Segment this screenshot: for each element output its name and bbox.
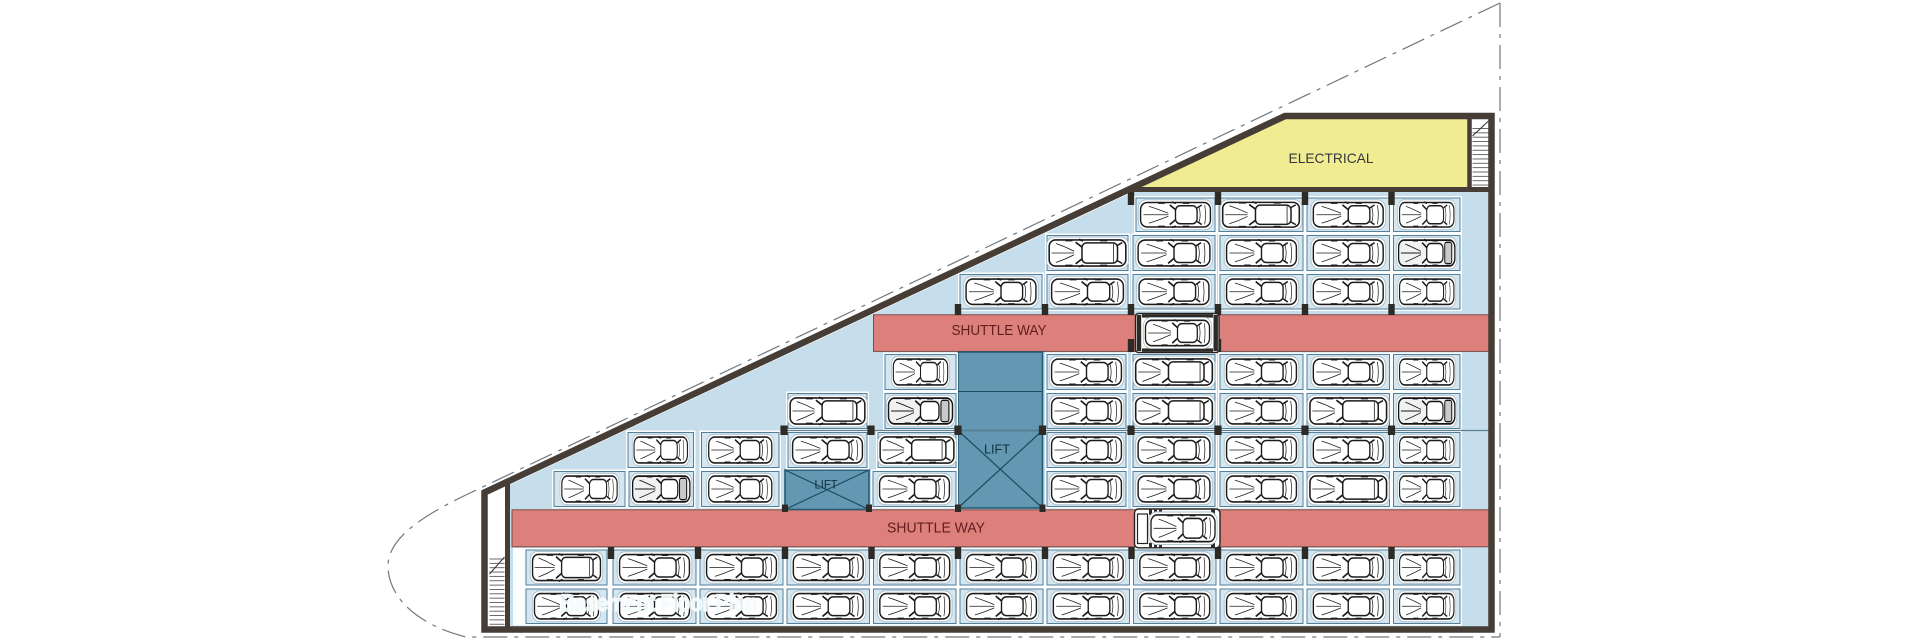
svg-text:Basement Floor Plan: Basement Floor Plan — [561, 590, 758, 617]
svg-text:SHUTTLE WAY: SHUTTLE WAY — [952, 322, 1047, 339]
svg-text:LIFT: LIFT — [984, 442, 1010, 457]
svg-text:ELECTRICAL: ELECTRICAL — [1289, 150, 1374, 166]
svg-text:LIFT: LIFT — [815, 478, 839, 492]
svg-text:SHUTTLE WAY: SHUTTLE WAY — [887, 520, 985, 537]
